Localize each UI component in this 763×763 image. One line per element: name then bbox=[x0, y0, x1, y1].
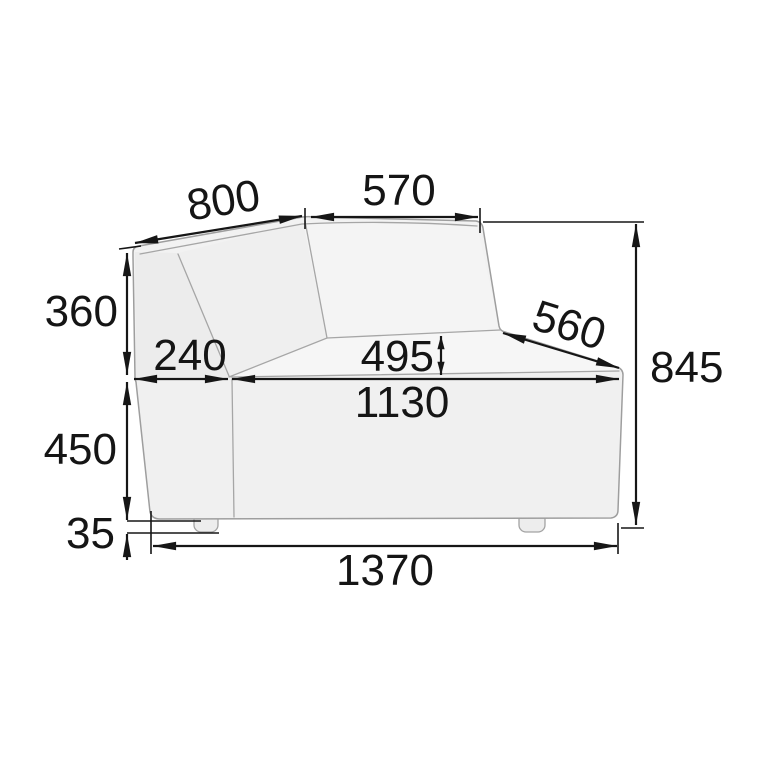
dimension-total-width: 1370 bbox=[151, 511, 618, 595]
dimension-label-495: 495 bbox=[361, 332, 434, 381]
technical-drawing-canvas: 800 570 845 360 240 1130 bbox=[0, 0, 763, 763]
dimension-back-height: 360 bbox=[45, 253, 127, 375]
dimension-base-height: 450 bbox=[44, 382, 127, 520]
sofa-right-backrest-face bbox=[303, 222, 500, 338]
dimension-label-570: 570 bbox=[362, 166, 435, 215]
dimension-label-800: 800 bbox=[183, 171, 263, 231]
dimension-seat-depth-mark: 495 bbox=[361, 332, 441, 381]
dimension-label-35: 35 bbox=[66, 509, 115, 558]
dimension-label-1130: 1130 bbox=[355, 378, 450, 427]
dimension-label-845: 845 bbox=[650, 343, 723, 392]
dimension-label-450: 450 bbox=[44, 425, 117, 474]
dimension-label-1370: 1370 bbox=[336, 546, 434, 595]
sofa-dimension-diagram: 800 570 845 360 240 1130 bbox=[0, 0, 763, 763]
dimension-label-240: 240 bbox=[153, 331, 226, 380]
dimension-label-360: 360 bbox=[45, 287, 118, 336]
